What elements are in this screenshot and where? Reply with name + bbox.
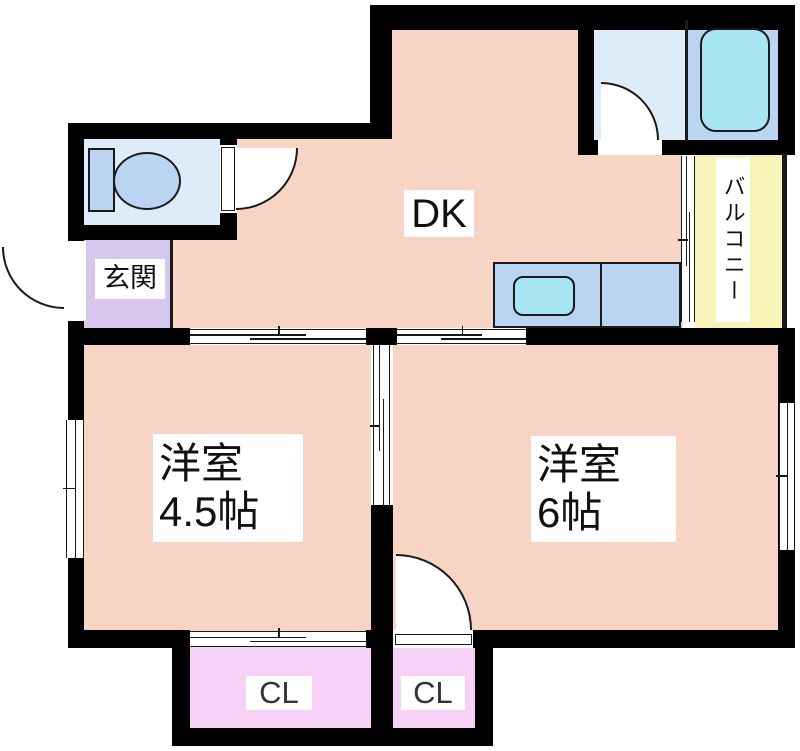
wall-left — [68, 123, 84, 648]
toilet-door-leaf — [221, 147, 235, 211]
kitchen-sink-icon — [513, 276, 575, 316]
front-door-arc — [2, 247, 64, 309]
wall-room-divider — [371, 505, 393, 745]
entrance-label: 玄関 — [95, 259, 165, 299]
window-left-wall — [66, 420, 84, 558]
closet-left-label: CL — [246, 676, 312, 710]
wall-rooms-top-right — [526, 328, 795, 345]
room-right-door-leaf — [395, 634, 472, 645]
toilet-tank-icon — [88, 148, 115, 212]
wall-washroom-left — [578, 5, 594, 155]
balcony-railing — [782, 153, 787, 328]
closet-left-sliding-door — [190, 631, 366, 647]
dk-label: DK — [404, 190, 474, 237]
wall-bottom-right — [473, 630, 795, 648]
kitchen-counter-split — [600, 263, 602, 327]
floor-plan: DK 玄関 バルコニー 洋室 4.5帖 洋室 6帖 CL CL — [0, 0, 800, 751]
sliding-door-between-rooms — [373, 345, 390, 505]
front-door-gap — [66, 241, 86, 321]
room-left-label: 洋室 4.5帖 — [153, 434, 303, 542]
room-right-label: 洋室 6帖 — [531, 436, 676, 542]
wall-right-top — [778, 5, 795, 155]
wall-step — [370, 5, 392, 137]
wall-rooms-top-mid — [366, 328, 397, 345]
sliding-door-dk-room-right — [397, 329, 526, 344]
room-right-size: 6帖 — [537, 489, 602, 537]
room-right-name: 洋室 — [537, 441, 621, 489]
washroom-bath-divider — [685, 20, 688, 141]
wall-toilet-bottom — [68, 225, 237, 240]
wall-closet-bottom — [172, 728, 493, 746]
dk-floor-hall — [170, 240, 240, 328]
room-left-size: 4.5帖 — [159, 488, 259, 536]
toilet-bowl-icon — [113, 152, 181, 210]
wall-closet-right-side — [475, 646, 493, 746]
room-left-name: 洋室 — [159, 440, 243, 488]
closet-right-label: CL — [401, 676, 465, 710]
wall-rooms-top-left — [68, 328, 190, 345]
sliding-door-dk-room-left — [190, 329, 366, 344]
entrance-step-line — [170, 240, 173, 328]
bathtub-icon — [700, 28, 770, 132]
balcony-label: バルコニー — [716, 158, 750, 322]
window-right-wall — [779, 403, 795, 550]
sliding-door-balcony — [681, 156, 695, 322]
washroom-door-gap — [598, 140, 662, 155]
